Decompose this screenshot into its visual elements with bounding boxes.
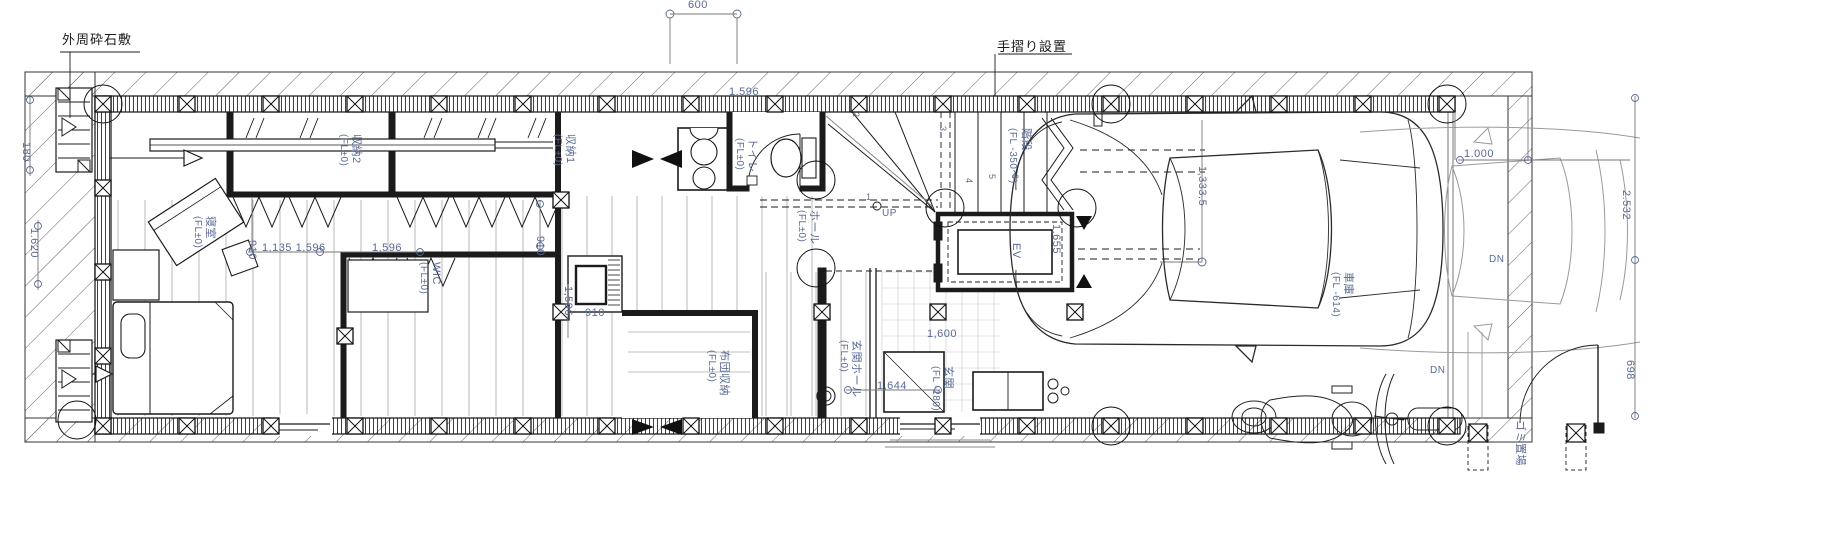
dresser xyxy=(348,260,428,312)
elevator xyxy=(934,214,1072,290)
service-door xyxy=(272,414,332,436)
site-entry-door xyxy=(1520,345,1604,433)
toilet-tank xyxy=(802,138,816,178)
central-wall xyxy=(555,112,561,418)
floor-plan-stage: 外周砕石敷 手摺り設置 6001,596寝室(FL±0)収納2(FL±0)収納1… xyxy=(0,0,1844,551)
floor-plan-drawing xyxy=(0,0,1844,551)
washbasin xyxy=(678,128,730,190)
shelf-unit xyxy=(568,256,622,312)
toilet-room xyxy=(727,112,825,191)
pillow xyxy=(121,314,145,358)
basin-bowl xyxy=(691,139,717,165)
futon-closet xyxy=(622,310,758,418)
toilet-bowl xyxy=(771,139,801,177)
